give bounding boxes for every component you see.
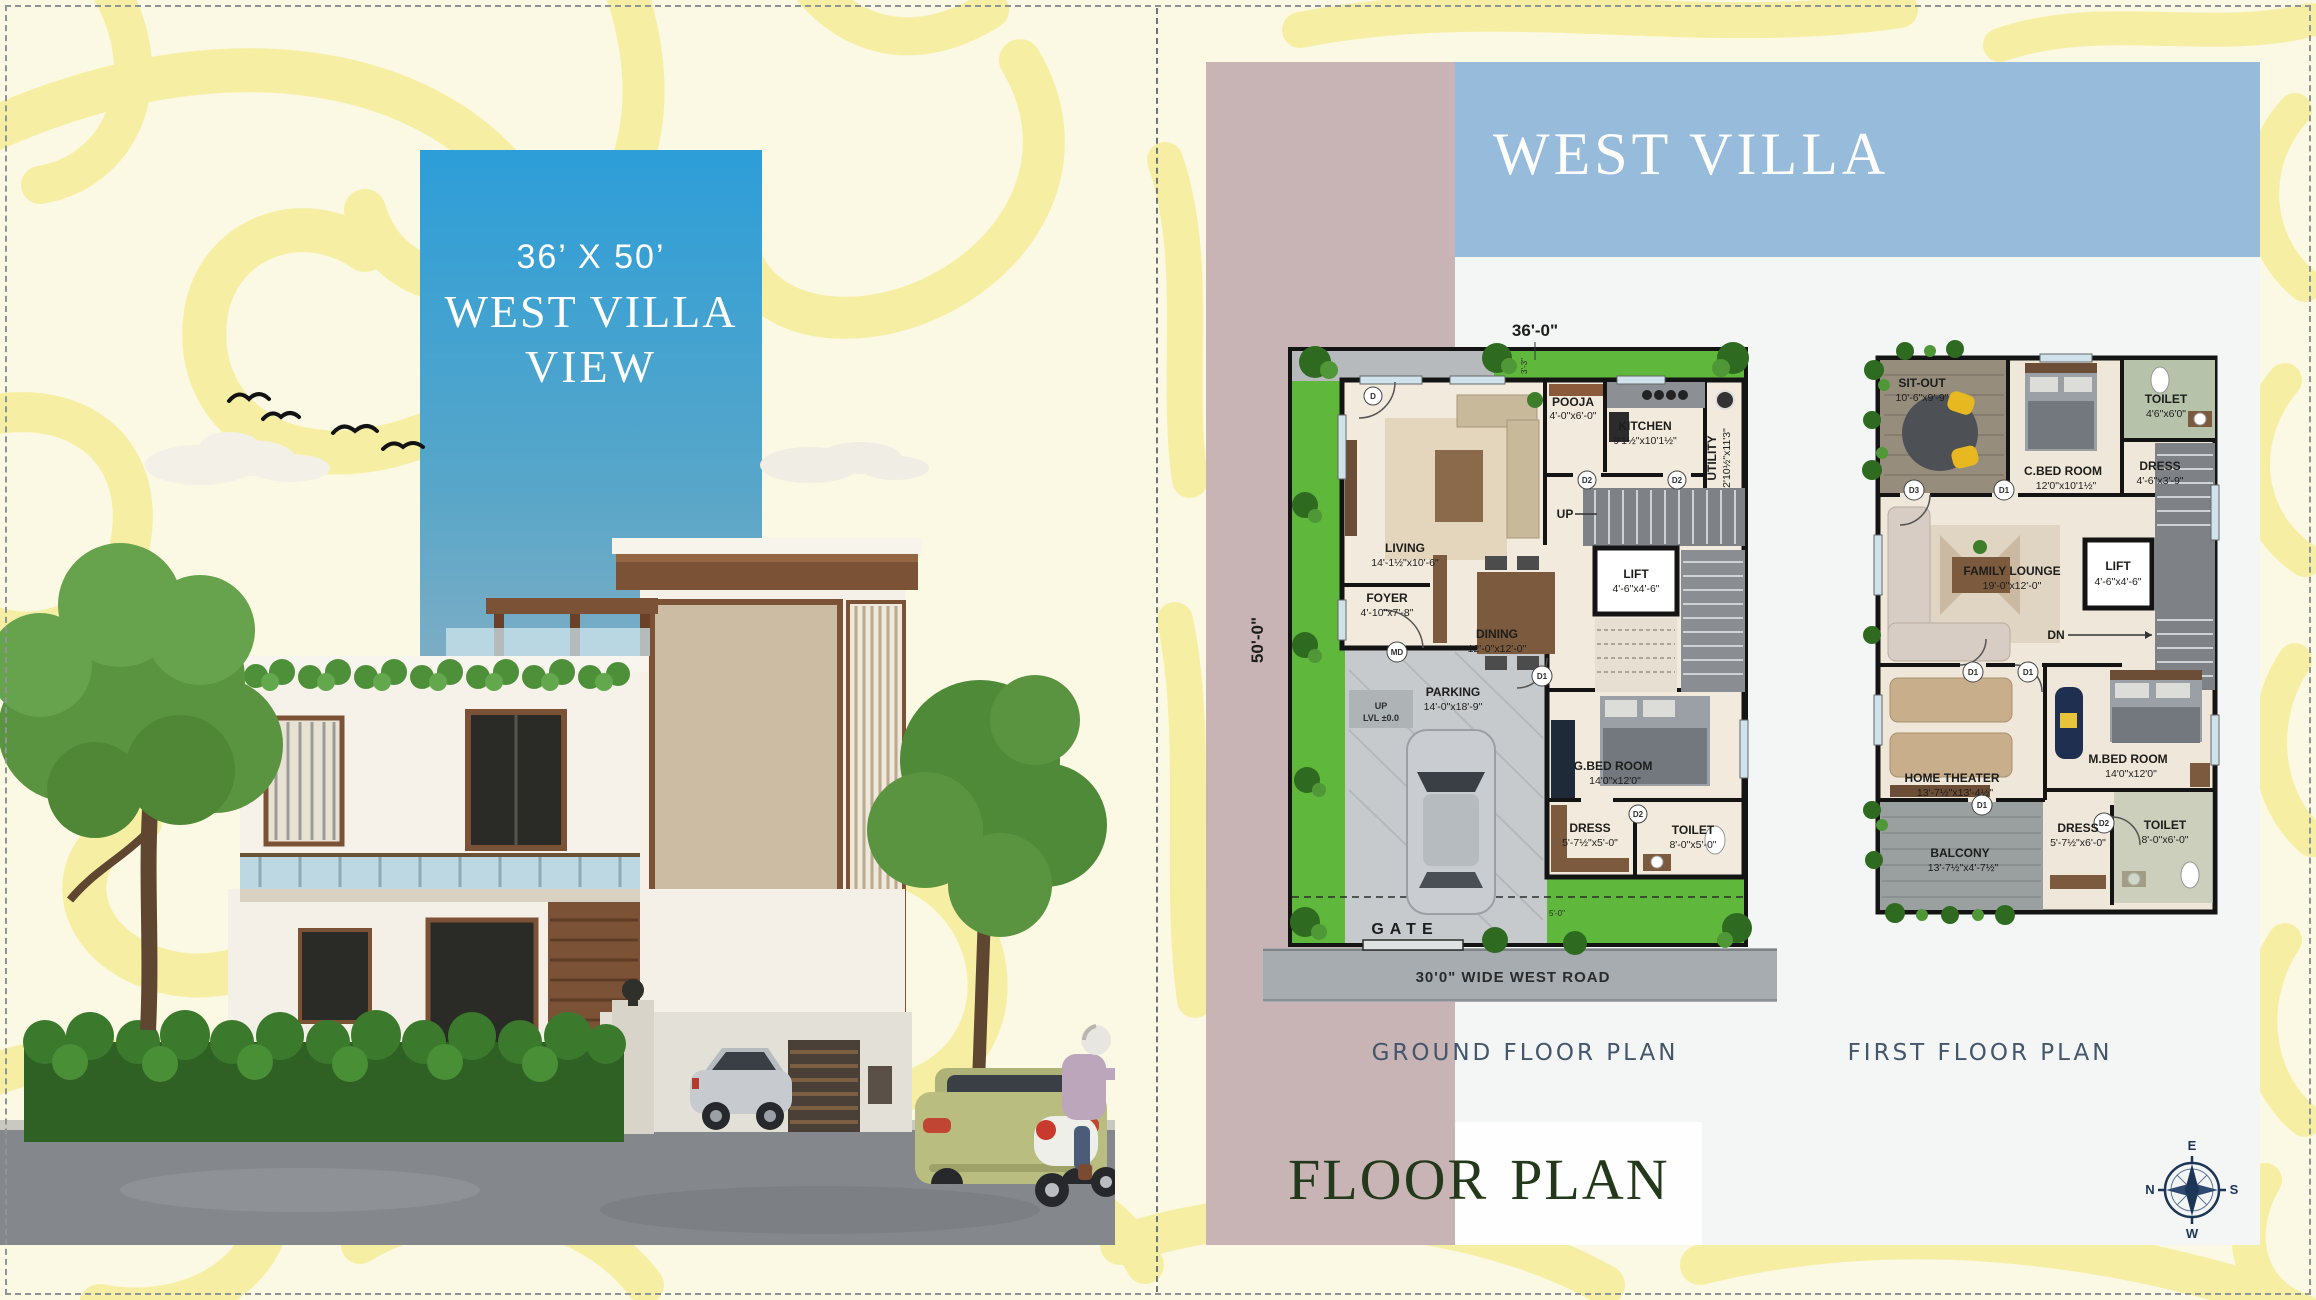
center-fold-line [1156, 8, 1158, 1292]
plot-width-dim: 36'-0" [1512, 321, 1558, 340]
svg-text:D2: D2 [2099, 819, 2110, 828]
svg-text:4'-0"x6'-0": 4'-0"x6'-0" [1549, 410, 1596, 422]
villa-view-title: WEST VILLA [420, 285, 762, 338]
svg-text:BALCONY: BALCONY [1930, 846, 1989, 860]
svg-text:9'1½"x10'1½": 9'1½"x10'1½" [1613, 435, 1677, 447]
lift-shaft [1595, 548, 1677, 614]
svg-text:D3: D3 [1909, 486, 1920, 495]
svg-text:D1: D1 [1537, 672, 1548, 681]
compass-s: S [2230, 1182, 2239, 1197]
plan-word: PLAN [1510, 1146, 1669, 1213]
svg-text:D1: D1 [2023, 668, 2034, 677]
svg-text:DRESS: DRESS [2057, 821, 2098, 835]
ground-floor-plan: 30'0" WIDE WEST ROAD 36'-0" 50'-0" 3'-3"… [1245, 300, 1795, 1010]
level-label: LVL ±0.0 [1363, 713, 1399, 723]
svg-text:MD: MD [1391, 648, 1404, 657]
svg-text:KITCHEN: KITCHEN [1618, 419, 1671, 433]
dn-label: DN [2047, 628, 2064, 642]
svg-text:4'-6"x4'-6": 4'-6"x4'-6" [1612, 583, 1659, 595]
svg-text:D2: D2 [1582, 476, 1593, 485]
svg-text:D1: D1 [1999, 486, 2010, 495]
svg-text:4'-6"x4'-6": 4'-6"x4'-6" [2094, 576, 2141, 588]
svg-text:DINING: DINING [1476, 627, 1518, 641]
svg-text:PARKING: PARKING [1426, 685, 1480, 699]
compass-n: N [2145, 1182, 2154, 1197]
svg-text:DRESS: DRESS [2139, 459, 2180, 473]
road-label: 30'0" WIDE WEST ROAD [1416, 969, 1611, 986]
up-stairs-label: UP [1557, 507, 1574, 521]
svg-text:2'10½"x11'3": 2'10½"x11'3" [1721, 428, 1733, 488]
svg-text:D1: D1 [1977, 801, 1988, 810]
first-floor-plan: D3 D1 D1 D1 D1 D2 DN SIT-OUT 10'-6"x9'-9… [1860, 335, 2240, 935]
svg-text:14'0"x12'0": 14'0"x12'0" [1589, 775, 1641, 787]
compass-w: W [2186, 1226, 2199, 1240]
svg-text:5'-7½"x5'-0": 5'-7½"x5'-0" [1562, 837, 1618, 849]
garden-dim: 3'-3" [1520, 358, 1529, 374]
svg-text:8'-0"x6'-0": 8'-0"x6'-0" [2141, 834, 2188, 846]
toilet-bottom [2114, 792, 2213, 903]
gate-label: GATE [1371, 921, 1438, 938]
svg-text:FOYER: FOYER [1366, 591, 1408, 605]
svg-text:DRESS: DRESS [1569, 821, 1610, 835]
compass-e: E [2188, 1138, 2197, 1153]
svg-text:4'-10"x7'-8": 4'-10"x7'-8" [1361, 607, 1414, 619]
svg-text:14'-1½"x10'-6": 14'-1½"x10'-6" [1371, 557, 1439, 569]
page-title: WEST VILLA [1455, 62, 2260, 189]
svg-text:5'-7½"x6'-0": 5'-7½"x6'-0" [2050, 837, 2106, 849]
front-hedge [23, 1010, 626, 1142]
gate-opening [1363, 940, 1463, 950]
svg-text:D2: D2 [1633, 810, 1644, 819]
svg-text:D: D [1370, 392, 1376, 401]
svg-text:LIFT: LIFT [1623, 567, 1649, 581]
svg-text:C.BED ROOM: C.BED ROOM [2024, 464, 2102, 478]
svg-text:LIVING: LIVING [1385, 541, 1425, 555]
svg-text:FAMILY LOUNGE: FAMILY LOUNGE [1963, 564, 2060, 578]
ground-floor-caption: GROUND FLOOR PLAN [1320, 1040, 1730, 1066]
lift-shaft [2085, 540, 2152, 608]
svg-text:M.BED ROOM: M.BED ROOM [2088, 752, 2167, 766]
villa-render [0, 430, 1115, 1245]
brochure-page: 36’ X 50’ WEST VILLA VIEW [0, 0, 2316, 1300]
svg-text:13'-7½"x13'-4½": 13'-7½"x13'-4½" [1917, 787, 1994, 799]
svg-text:12'-0"x12'-0": 12'-0"x12'-0" [1468, 643, 1527, 655]
floor-word: FLOOR [1288, 1146, 1488, 1213]
plot-depth-dim: 50'-0" [1248, 617, 1267, 663]
svg-text:13'-7½"x4'-7½": 13'-7½"x4'-7½" [1928, 862, 1999, 874]
villa-view-subtitle: VIEW [420, 340, 762, 393]
up-ramp-label: UP [1375, 701, 1388, 711]
svg-text:D2: D2 [1672, 476, 1683, 485]
svg-text:SIT-OUT: SIT-OUT [1898, 376, 1946, 390]
svg-text:8'-0"x5'-0": 8'-0"x5'-0" [1669, 839, 1716, 851]
svg-text:14'-0"x18'-9": 14'-0"x18'-9" [1424, 701, 1483, 713]
svg-text:19'-0"x12'-0": 19'-0"x12'-0" [1983, 580, 2042, 592]
svg-text:UTILITY: UTILITY [1705, 435, 1719, 480]
setback-dim: 5'-0" [1549, 909, 1565, 918]
compass-icon: E N S W [2142, 1136, 2242, 1240]
svg-text:TOILET: TOILET [1672, 823, 1715, 837]
villa-size-label: 36’ X 50’ [420, 238, 762, 277]
svg-text:LIFT: LIFT [2105, 559, 2131, 573]
svg-text:TOILET: TOILET [2144, 818, 2187, 832]
svg-text:TOILET: TOILET [2145, 392, 2188, 406]
floor-plan-title: FLOOR PLAN [1288, 1146, 1670, 1213]
svg-text:4'6"x6'0": 4'6"x6'0" [2146, 408, 2186, 420]
svg-text:12'0"x10'1½": 12'0"x10'1½" [2036, 480, 2097, 492]
svg-text:14'0"x12'0": 14'0"x12'0" [2105, 768, 2157, 780]
header-band: WEST VILLA [1455, 62, 2260, 257]
svg-text:HOME THEATER: HOME THEATER [1904, 771, 1999, 785]
svg-text:G.BED ROOM: G.BED ROOM [1574, 759, 1653, 773]
svg-text:4'-6"x3'-9": 4'-6"x3'-9" [2136, 475, 2183, 487]
svg-text:10'-6"x9'-9": 10'-6"x9'-9" [1896, 392, 1949, 404]
svg-text:POOJA: POOJA [1552, 395, 1594, 409]
first-floor-caption: FIRST FLOOR PLAN [1780, 1040, 2180, 1066]
svg-text:D1: D1 [1968, 668, 1979, 677]
